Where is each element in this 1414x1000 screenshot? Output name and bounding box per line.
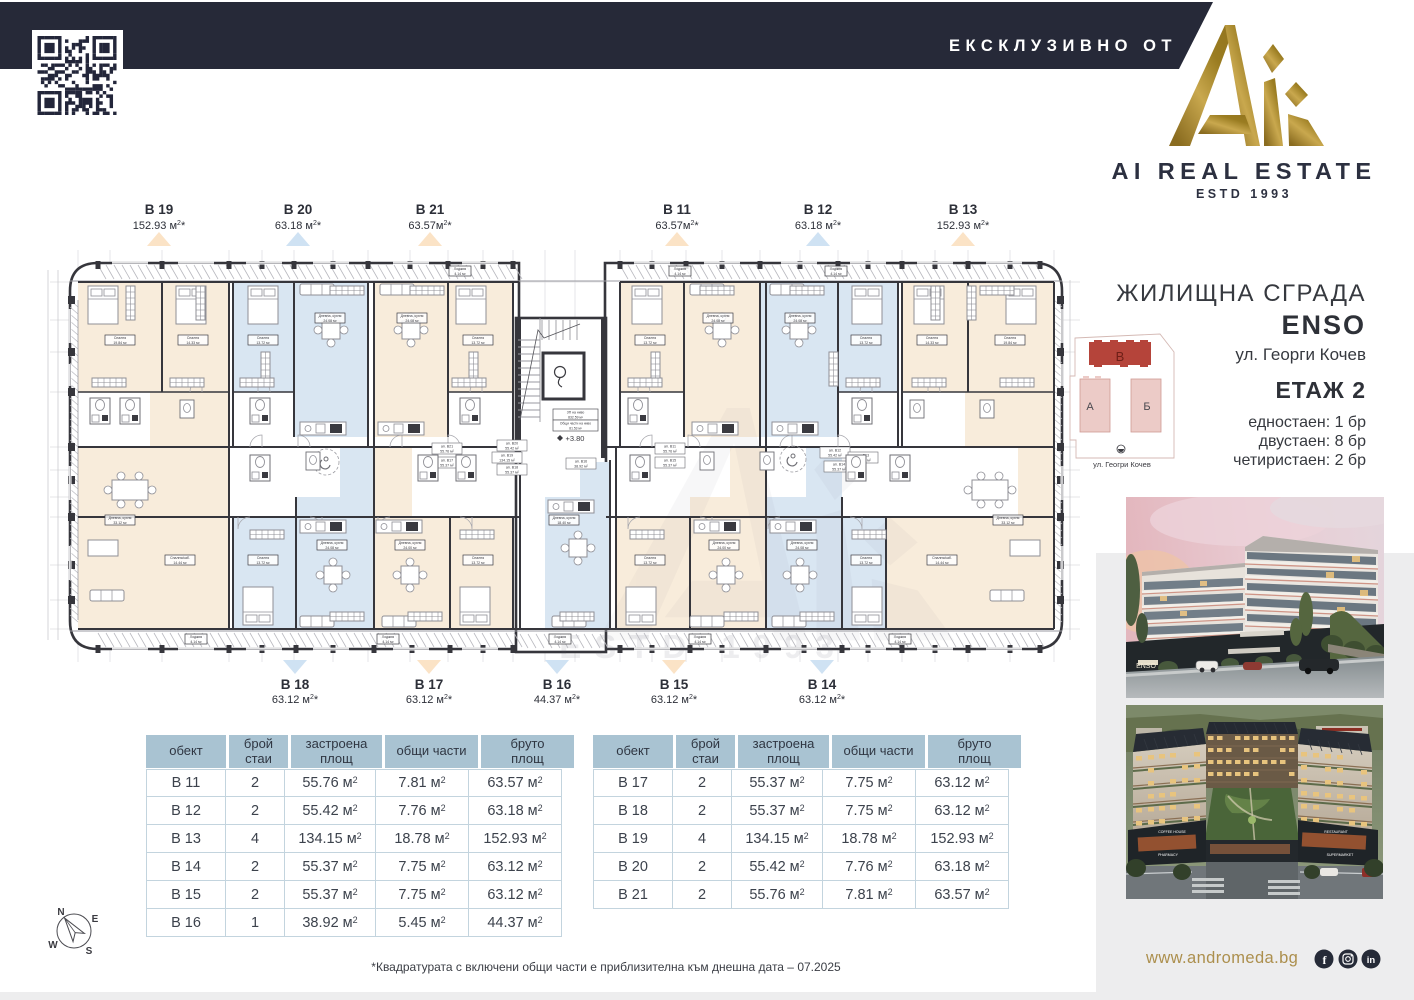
svg-text:81.53 м²: 81.53 м² (569, 426, 582, 430)
svg-text:RESTAURANT: RESTAURANT (1324, 830, 1348, 834)
svg-text:Дневна, кухня: Дневна, кухня (997, 516, 1020, 520)
svg-text:44.37 м2*: 44.37 м2* (534, 694, 581, 706)
svg-text:B 19: B 19 (145, 202, 174, 217)
svg-text:Спалня: Спалня (257, 556, 269, 560)
svg-text:Дневна, кухня: Дневна, кухня (713, 541, 736, 545)
svg-text:AI REAL ESTATE: AI REAL ESTATE (1112, 158, 1377, 184)
svg-text:Спалня: Спалня (257, 336, 269, 340)
svg-text:Лоджия: Лоджия (674, 267, 687, 271)
svg-text:134.15 м²: 134.15 м² (499, 459, 515, 463)
svg-text:4.14 м²: 4.14 м² (830, 272, 842, 276)
svg-text:ESTD 1993: ESTD 1993 (1196, 187, 1292, 201)
svg-text:Спалня: Спалня (114, 336, 126, 340)
svg-text:24.08 м²: 24.08 м² (795, 546, 809, 550)
svg-text:24.08 м²: 24.08 м² (793, 319, 807, 323)
svg-text:14.44 м²: 14.44 м² (935, 561, 949, 565)
svg-text:63.12 м2*: 63.12 м2* (272, 694, 319, 706)
svg-text:Общи части на ниво: Общи части на ниво (560, 422, 591, 426)
svg-text:24.08 м²: 24.08 м² (323, 319, 337, 323)
svg-text:ап. B11: ап. B11 (664, 445, 676, 449)
svg-text:Лоджия: Лоджия (894, 635, 907, 639)
svg-text:Спалня: Спалня (644, 556, 656, 560)
svg-text:13.72 м²: 13.72 м² (256, 341, 270, 345)
svg-text:Спалня: Спалня (860, 556, 872, 560)
svg-text:Дневна, кухня: Дневна, кухня (553, 516, 576, 520)
svg-text:13.72 м²: 13.72 м² (471, 341, 485, 345)
svg-text:ап. B16: ап. B16 (575, 460, 587, 464)
svg-text:4.14 м²: 4.14 м² (694, 640, 706, 644)
svg-text:Лоджия: Лоджия (382, 635, 395, 639)
svg-text:14.33 м²: 14.33 м² (925, 341, 939, 345)
svg-text:B 15: B 15 (660, 677, 689, 692)
svg-text:152.93 м2*: 152.93 м2* (937, 220, 990, 232)
svg-text:63.18 м2*: 63.18 м2* (795, 220, 842, 232)
svg-text:B 11: B 11 (663, 202, 691, 217)
svg-text:B 16: B 16 (543, 677, 572, 692)
svg-text:Дневна, кухня: Дневна, кухня (791, 541, 814, 545)
svg-text:4.14 м²: 4.14 м² (674, 272, 686, 276)
svg-text:SUPERMARKET: SUPERMARKET (1327, 853, 1355, 857)
svg-text:14.44 м²: 14.44 м² (173, 561, 187, 565)
svg-text:Лоджия: Лоджия (830, 267, 843, 271)
svg-text:33.12 м²: 33.12 м² (1001, 521, 1015, 525)
svg-text:18.40 м²: 18.40 м² (557, 521, 571, 525)
svg-text:E: E (92, 914, 99, 925)
svg-text:4.14 м²: 4.14 м² (382, 640, 394, 644)
svg-text:+3.80: +3.80 (566, 434, 585, 443)
svg-text:Спалня: Спалня (187, 336, 199, 340)
svg-text:ап. B12: ап. B12 (829, 449, 841, 453)
svg-text:63.57м2*: 63.57м2* (655, 220, 699, 232)
svg-text:ап. B21: ап. B21 (441, 445, 453, 449)
svg-text:13.72 м²: 13.72 м² (256, 561, 270, 565)
svg-text:13.72 м²: 13.72 м² (471, 561, 485, 565)
svg-text:13.72 м²: 13.72 м² (859, 341, 873, 345)
svg-text:ап. B18: ап. B18 (506, 466, 518, 470)
svg-text:24.00 м²: 24.00 м² (717, 546, 731, 550)
svg-text:Лоджия: Лоджия (190, 635, 203, 639)
svg-text:ENSO: ENSO (1136, 663, 1156, 670)
svg-text:ЗП на ниво: ЗП на ниво (567, 411, 585, 415)
svg-text:24.08 м²: 24.08 м² (405, 319, 419, 323)
svg-text:B 18: B 18 (281, 677, 310, 692)
svg-text:Спалня: Спалня (644, 336, 656, 340)
svg-text:B 13: B 13 (949, 202, 978, 217)
svg-text:B 21: B 21 (416, 202, 445, 217)
svg-text:55.42 м²: 55.42 м² (828, 454, 842, 458)
svg-text:www.andromeda.bg: www.andromeda.bg (1145, 949, 1298, 967)
svg-text:4.14 м²: 4.14 м² (454, 272, 466, 276)
svg-text:ап. B20: ап. B20 (506, 442, 518, 446)
svg-text:55.76 м²: 55.76 м² (440, 450, 454, 454)
svg-text:Спалня/каб.: Спалня/каб. (932, 556, 952, 560)
svg-text:24.08 м²: 24.08 м² (325, 546, 339, 550)
svg-text:W: W (48, 940, 58, 951)
svg-text:ап. B19: ап. B19 (501, 454, 513, 458)
svg-text:24.08 м²: 24.08 м² (711, 319, 725, 323)
svg-text:S: S (86, 946, 93, 957)
svg-text:Спалня: Спалня (472, 556, 484, 560)
svg-text:Дневна, кухня: Дневна, кухня (399, 541, 422, 545)
svg-text:Дневна, кухня: Дневна, кухня (319, 314, 342, 318)
svg-text:55.37 м²: 55.37 м² (832, 468, 846, 472)
svg-text:4.14 м²: 4.14 м² (554, 640, 566, 644)
svg-text:Дневна, кухня: Дневна, кухня (707, 314, 730, 318)
svg-text:Спалня: Спалня (860, 336, 872, 340)
svg-text:ап. B17: ап. B17 (441, 459, 453, 463)
svg-text:24.00 м²: 24.00 м² (403, 546, 417, 550)
svg-text:13.72 м²: 13.72 м² (859, 561, 873, 565)
svg-text:4.14 м²: 4.14 м² (190, 640, 202, 644)
svg-text:13.72 м²: 13.72 м² (643, 561, 657, 565)
svg-text:55.37 м²: 55.37 м² (440, 464, 454, 468)
svg-text:N: N (57, 907, 64, 918)
svg-text:63.12 м2*: 63.12 м2* (651, 694, 698, 706)
svg-text:33.12 м²: 33.12 м² (113, 521, 127, 525)
svg-text:Дневна, кухня: Дневна, кухня (109, 516, 132, 520)
svg-text:Лоджия: Лоджия (694, 635, 707, 639)
svg-text:55.37 м²: 55.37 м² (505, 471, 519, 475)
svg-text:55.76 м²: 55.76 м² (663, 450, 677, 454)
svg-text:ЕКСКЛУЗИВНО ОТ: ЕКСКЛУЗИВНО ОТ (949, 37, 1177, 55)
svg-text:Дневна, кухня: Дневна, кухня (321, 541, 344, 545)
svg-text:63.12 м2*: 63.12 м2* (799, 694, 846, 706)
svg-text:B 20: B 20 (284, 202, 313, 217)
svg-text:19.84 м²: 19.84 м² (1003, 341, 1017, 345)
svg-text:152.93 м2*: 152.93 м2* (133, 220, 186, 232)
svg-text:COFFEE HOUSE: COFFEE HOUSE (1158, 830, 1186, 834)
svg-text:Лоджия: Лоджия (554, 635, 567, 639)
svg-text:Спалня: Спалня (926, 336, 938, 340)
svg-text:in: in (1367, 955, 1376, 966)
svg-text:13.72 м²: 13.72 м² (643, 341, 657, 345)
svg-text:Дневна, кухня: Дневна, кухня (401, 314, 424, 318)
svg-text:Спалня: Спалня (472, 336, 484, 340)
svg-text:832.59 м²: 832.59 м² (568, 415, 584, 419)
svg-text:Лоджия: Лоджия (454, 267, 467, 271)
svg-text:14.33 м²: 14.33 м² (186, 341, 200, 345)
svg-text:Спалня: Спалня (1004, 336, 1016, 340)
svg-text:ап. B14: ап. B14 (833, 463, 845, 467)
svg-text:B 12: B 12 (804, 202, 833, 217)
svg-text:Дневна, кухня: Дневна, кухня (789, 314, 812, 318)
svg-text:38.92 м²: 38.92 м² (574, 465, 588, 469)
svg-text:ап. B15: ап. B15 (664, 459, 676, 463)
svg-text:B 14: B 14 (808, 677, 837, 692)
svg-text:55.37 м²: 55.37 м² (663, 464, 677, 468)
svg-text:63.18 м2*: 63.18 м2* (275, 220, 322, 232)
svg-text:B 17: B 17 (415, 677, 444, 692)
svg-text:Спалня/каб.: Спалня/каб. (170, 556, 190, 560)
svg-text:4.14 м²: 4.14 м² (894, 640, 906, 644)
svg-text:63.12 м2*: 63.12 м2* (406, 694, 453, 706)
svg-text:63.57м2*: 63.57м2* (408, 220, 452, 232)
svg-text:PHARMACY: PHARMACY (1158, 853, 1179, 857)
svg-text:19.84 м²: 19.84 м² (113, 341, 127, 345)
svg-text:55.42 м²: 55.42 м² (505, 447, 519, 451)
